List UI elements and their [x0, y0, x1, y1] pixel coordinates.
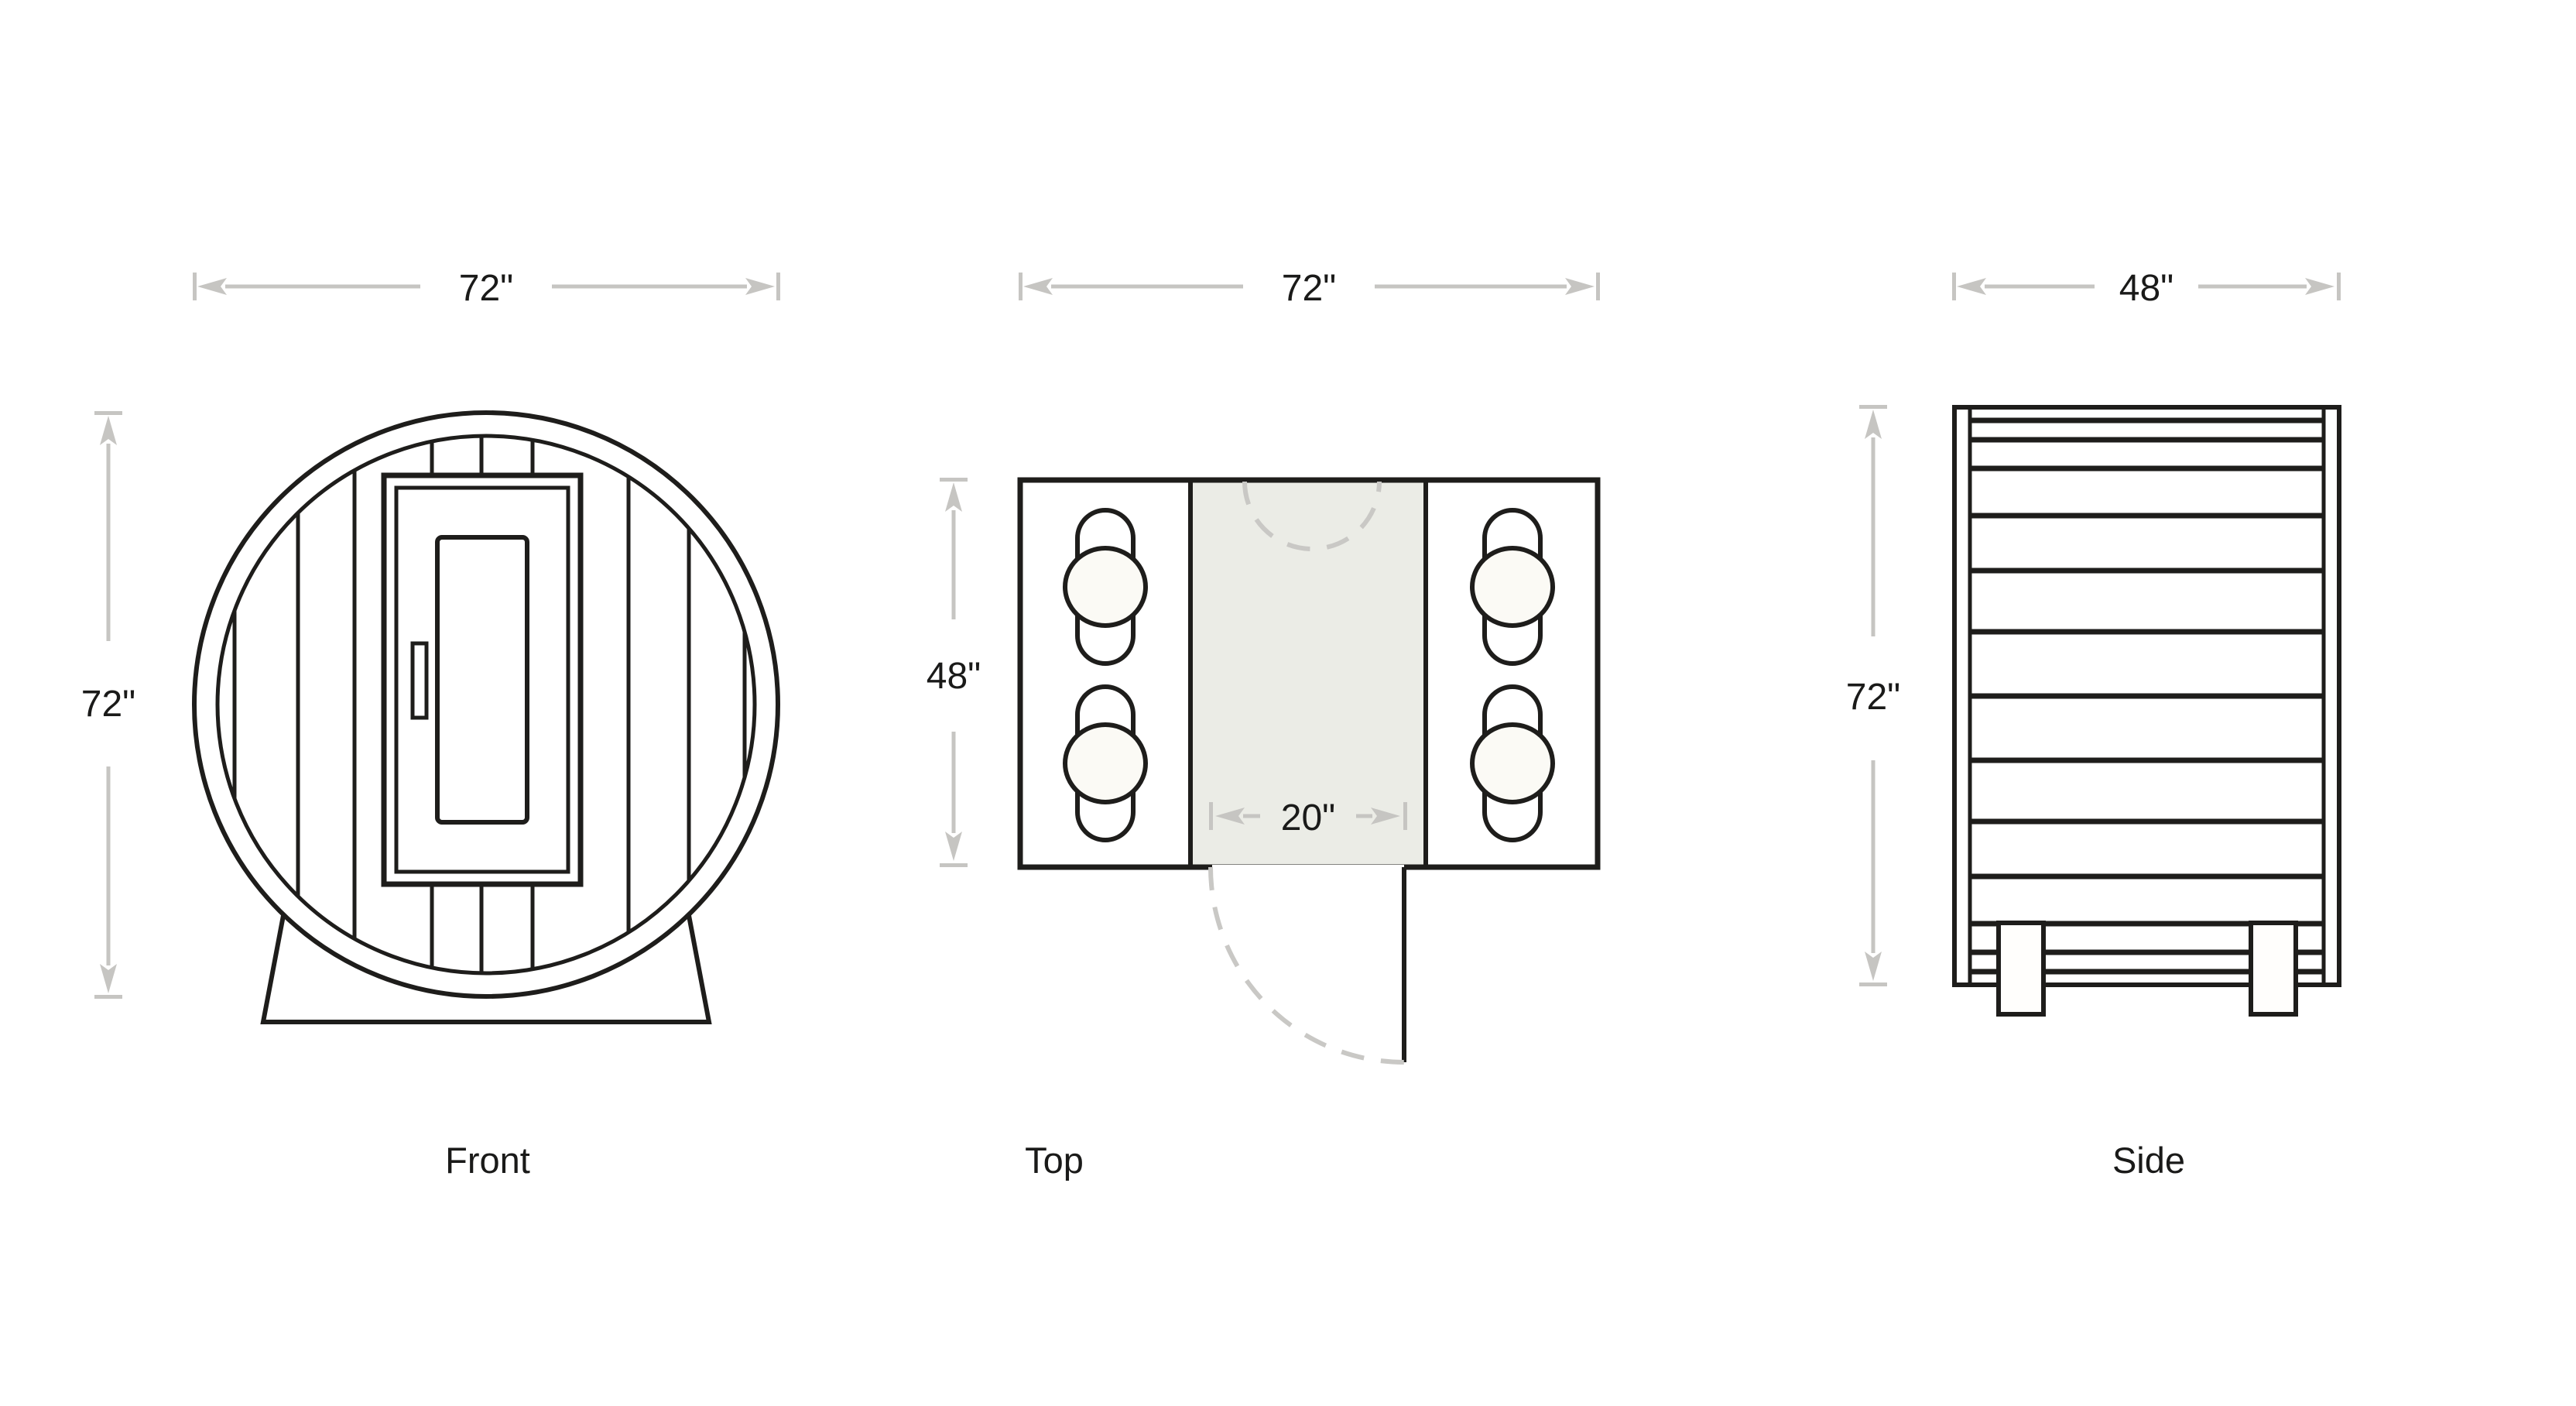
- side-width-dimension: 48": [1952, 268, 2341, 309]
- person-seat-icon: [1472, 687, 1553, 840]
- front-width-value: 72": [459, 268, 513, 309]
- arrow-down-icon: [100, 964, 117, 993]
- door-opening: [1212, 865, 1404, 874]
- arrow-up-icon: [945, 482, 962, 512]
- arrow-right-icon: [745, 278, 775, 295]
- side-drawing: [1954, 407, 2339, 1014]
- dimension-tick: [1859, 982, 1887, 986]
- dimension-tick: [1596, 273, 1600, 300]
- dimension-tick: [940, 863, 968, 867]
- dimension-tick: [94, 411, 122, 415]
- dimension-tick: [940, 478, 968, 482]
- top-view-label: Top: [1025, 1140, 1084, 1181]
- arrow-left-icon: [1023, 278, 1053, 295]
- dimension-tick: [94, 995, 122, 999]
- arrow-left-icon: [197, 278, 227, 295]
- dimension-tick: [1952, 273, 1956, 300]
- side-height-value: 72": [1846, 677, 1900, 718]
- dimension-tick: [1209, 802, 1213, 830]
- side-width-value: 48": [2119, 268, 2173, 309]
- top-depth-dimension: 48": [927, 478, 981, 867]
- person-seat-icon: [1065, 510, 1146, 664]
- dimension-tick: [776, 273, 780, 300]
- top-drawing: [1020, 480, 1598, 1062]
- person-seat-icon: [1472, 510, 1553, 664]
- person-seat-icon: [1065, 687, 1146, 840]
- top-width-value: 72": [1282, 268, 1336, 309]
- dimension-tick: [1859, 405, 1887, 409]
- front-height-value: 72": [81, 684, 135, 725]
- top-width-dimension: 72": [1019, 268, 1600, 309]
- dimension-tick: [1019, 273, 1023, 300]
- front-view: 72" 72": [81, 268, 780, 1181]
- arrow-left-icon: [1957, 278, 1986, 295]
- side-view: 48" 72": [1846, 268, 2341, 1181]
- cradle-foot: [2251, 923, 2296, 1014]
- door-swing-arc: [1211, 867, 1404, 1062]
- dimension-tick: [193, 273, 197, 300]
- arrow-right-icon: [2305, 278, 2334, 295]
- side-height-dimension: 72": [1846, 405, 1900, 986]
- arrow-down-icon: [945, 832, 962, 861]
- arrow-right-icon: [1565, 278, 1595, 295]
- arrow-up-icon: [100, 416, 117, 445]
- top-depth-value: 48": [927, 656, 981, 697]
- sauna-dimensions-diagram: 72" 72": [0, 0, 2576, 1406]
- arrow-up-icon: [1865, 410, 1882, 439]
- top-view: 72" 48": [927, 268, 1600, 1181]
- front-width-dimension: 72": [193, 268, 780, 309]
- arrow-down-icon: [1865, 952, 1882, 981]
- front-drawing: [194, 413, 778, 1022]
- dimension-tick: [1403, 802, 1407, 830]
- cradle-foot: [1999, 923, 2043, 1014]
- door-width-value: 20": [1281, 797, 1335, 838]
- front-height-dimension: 72": [81, 411, 135, 999]
- dimension-tick: [2337, 273, 2341, 300]
- front-view-label: Front: [445, 1140, 530, 1181]
- side-view-label: Side: [2112, 1140, 2185, 1181]
